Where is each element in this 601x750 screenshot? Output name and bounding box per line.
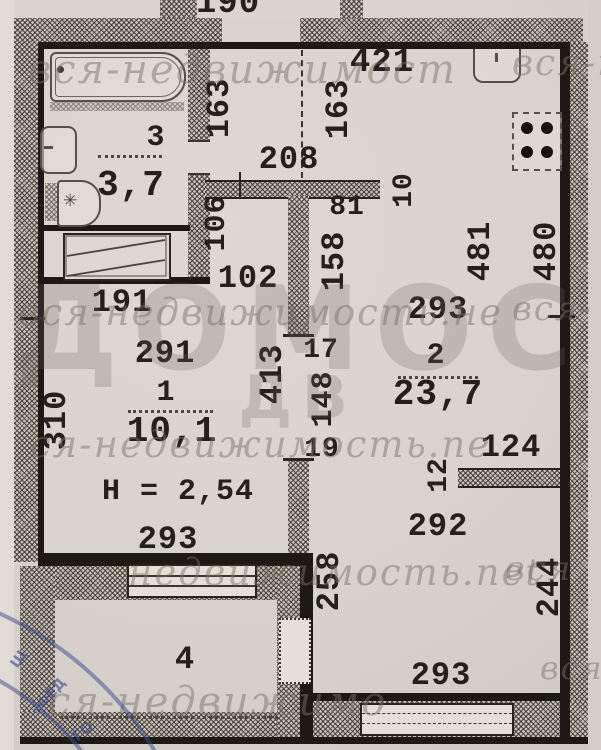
wall-room2-lower-top-line (313, 693, 568, 701)
bathtub-drain (57, 66, 64, 73)
toilet-star-icon: ✳ (63, 191, 77, 211)
ceiling-height: Н = 2,54 (102, 477, 254, 507)
wall-stub-top-mid (340, 0, 363, 18)
bathtub-inner (55, 57, 181, 97)
window-room2-line2 (362, 723, 512, 724)
dim-10: 10 (391, 172, 419, 208)
dim-191: 191 (92, 287, 153, 319)
dim-17: 17 (303, 337, 339, 365)
room2-area: 23,7 (393, 377, 483, 413)
dim-81: 81 (329, 194, 365, 222)
dim-102: 102 (218, 263, 279, 295)
window-balcony (127, 564, 257, 598)
paper-margin-right (588, 0, 601, 750)
kitchen-sink-tap (495, 53, 498, 62)
stove (512, 112, 562, 171)
toilet: ✳ (57, 180, 101, 227)
wash-basin-tap (44, 146, 53, 149)
dim-291: 291 (135, 338, 196, 370)
room3-area: 3,7 (97, 168, 165, 204)
stove-burner (521, 146, 533, 158)
wash-basin (40, 126, 77, 174)
room1-number: 1 (156, 378, 175, 408)
door-jamb-bottom (283, 458, 314, 461)
dim-tick-left-wall (20, 317, 45, 320)
dim-293-room2: 293 (408, 294, 469, 326)
cabinet (63, 233, 171, 281)
dim-293-bottom: 293 (411, 660, 472, 692)
wall-central-lower (288, 460, 309, 555)
dim-413: 413 (257, 344, 289, 405)
dim-480: 480 (531, 221, 563, 282)
dim-421: 421 (350, 46, 414, 80)
watermark-row-3: ся-недвижимость.ne (30, 426, 491, 463)
outline-top (38, 42, 570, 49)
wall-left (14, 42, 38, 562)
room4-number: 4 (175, 644, 195, 676)
dim-158: 158 (319, 231, 351, 292)
room1-area: 10,1 (127, 414, 217, 450)
dim-190: 190 (196, 0, 260, 21)
dim-163-right: 163 (323, 79, 355, 140)
wall-ledge-right (458, 468, 563, 488)
dim-tick-right-wall (548, 315, 575, 318)
floor-plan-scan: ✳ 3 3,7 1 10,1 Н = 2,54 2 23,7 4 190 421… (0, 0, 601, 750)
outline-left (38, 42, 44, 553)
window-room2-line (362, 713, 512, 714)
window-balcony-line (129, 575, 255, 577)
balcony-door (279, 618, 311, 684)
bathroom-door-jamb-top (188, 140, 210, 142)
stove-burner (521, 122, 533, 134)
dim-163-left: 163 (204, 78, 236, 139)
room3-area-line (98, 155, 162, 158)
wall-central-upper (288, 195, 309, 337)
dim-292: 292 (408, 511, 469, 543)
stove-burner (541, 122, 553, 134)
dim-124: 124 (481, 432, 542, 464)
dim-258: 258 (314, 551, 346, 612)
room3-number: 3 (146, 123, 165, 153)
toilet-cistern (45, 183, 57, 221)
stove-burner (541, 146, 553, 158)
window-balcony-line2 (129, 585, 255, 587)
cabinet-diagonals (65, 235, 169, 279)
kitchen-sink (473, 49, 521, 83)
room2-number: 2 (426, 341, 445, 371)
bathtub (50, 52, 186, 102)
bathtub-apron (50, 102, 184, 111)
dim-310: 310 (41, 390, 73, 451)
wall-stub-top-left (160, 0, 197, 18)
door-jamb-top (283, 334, 314, 337)
dim-481: 481 (465, 221, 497, 282)
dim-208: 208 (259, 144, 320, 176)
dim-tick-hall (239, 172, 241, 198)
wall-right (570, 42, 588, 742)
dim-148: 148 (309, 370, 339, 427)
dim-293-room1: 293 (138, 524, 199, 556)
dim-106: 106 (202, 194, 232, 251)
dim-244: 244 (534, 557, 566, 618)
window-room2-south (360, 703, 514, 736)
dim-12: 12 (426, 457, 454, 493)
